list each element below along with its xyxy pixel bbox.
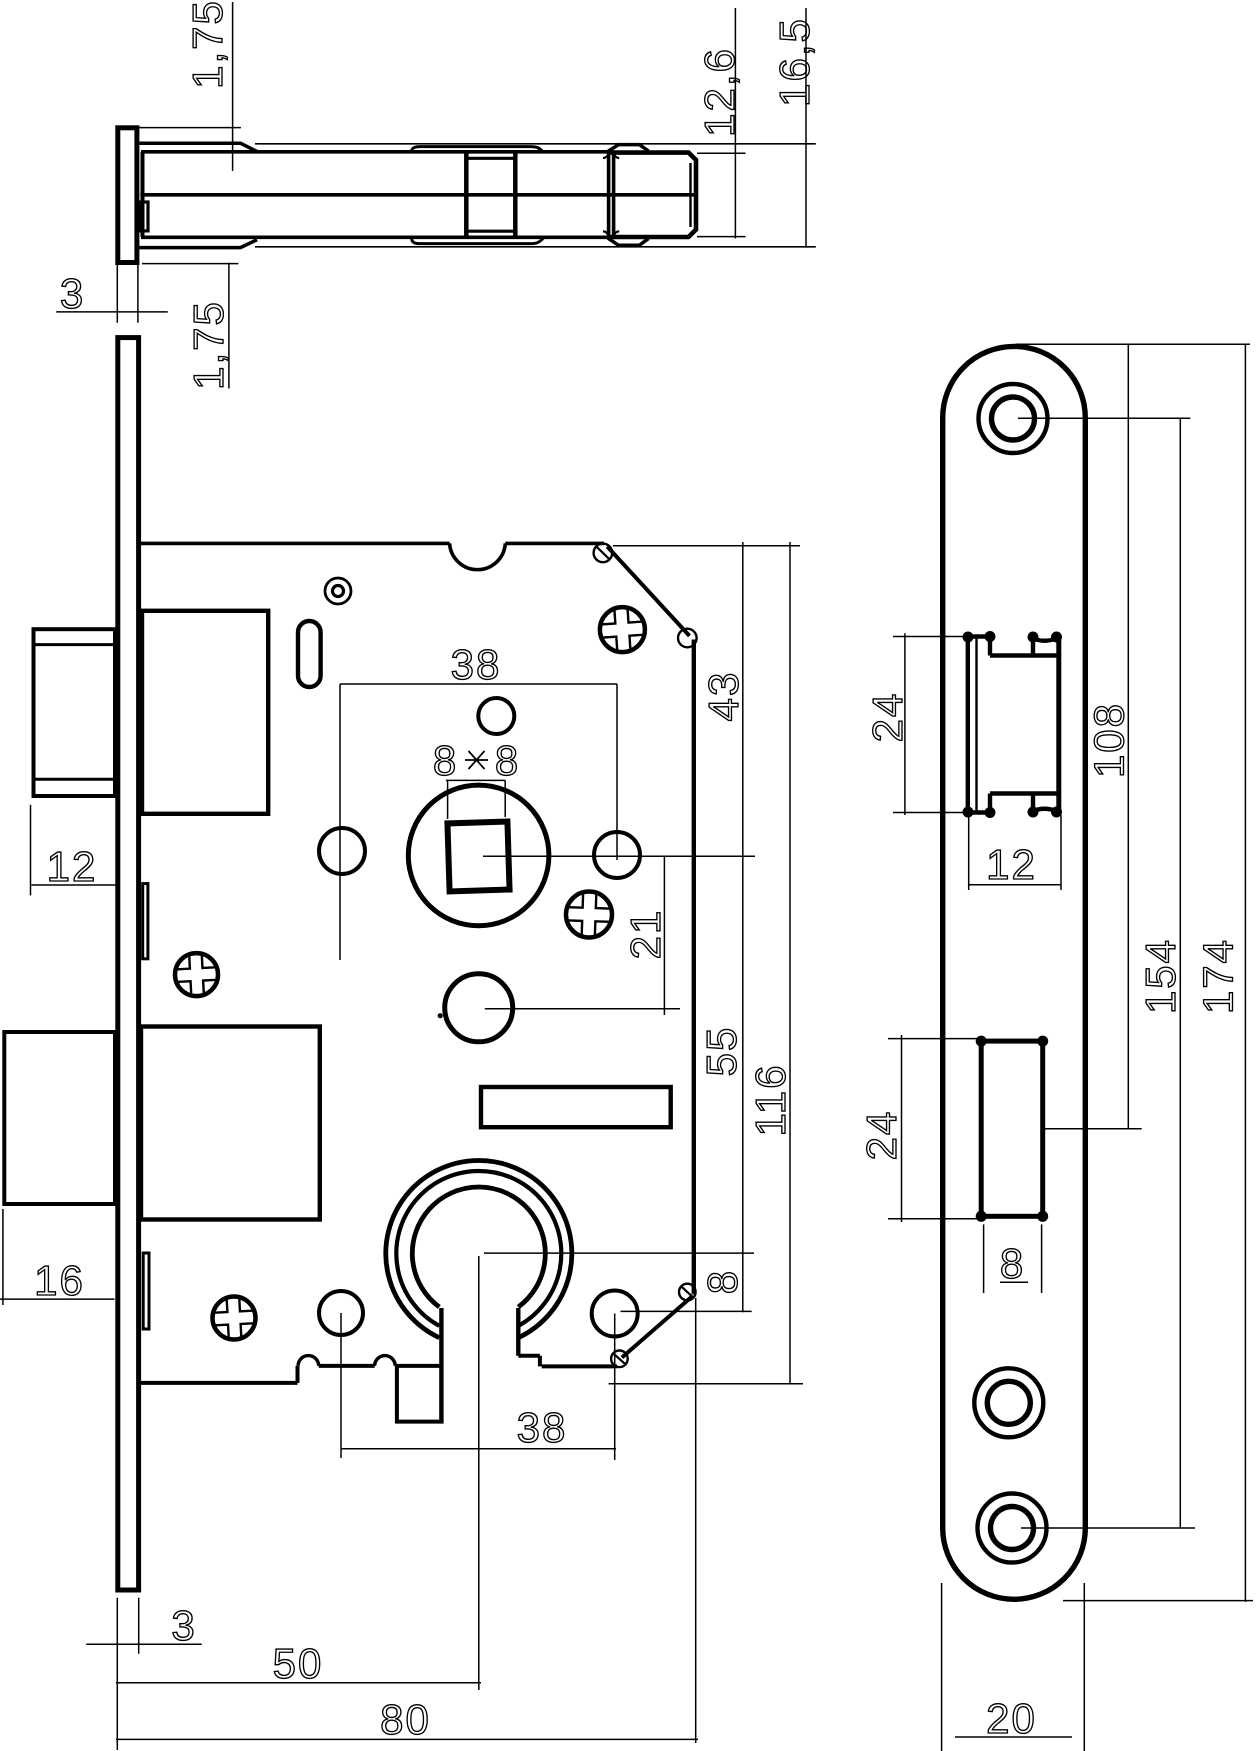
svg-text:12: 12 (986, 841, 1037, 888)
svg-text:24: 24 (864, 692, 911, 743)
svg-text:38: 38 (517, 1404, 568, 1451)
svg-text:1,75: 1,75 (185, 300, 232, 390)
svg-text:8: 8 (433, 737, 458, 784)
svg-text:116: 116 (747, 1064, 794, 1137)
svg-text:8: 8 (1000, 1240, 1025, 1287)
svg-text:3: 3 (171, 1602, 196, 1649)
svg-text:55: 55 (698, 1026, 745, 1077)
svg-text:1,75: 1,75 (184, 0, 231, 89)
svg-text:174: 174 (1195, 938, 1242, 1014)
svg-text:16: 16 (34, 1257, 85, 1304)
svg-text:12: 12 (47, 843, 98, 890)
svg-text:154: 154 (1137, 938, 1184, 1014)
svg-text:8: 8 (699, 1269, 746, 1294)
svg-text:16,5: 16,5 (771, 17, 818, 107)
svg-text:3: 3 (60, 270, 85, 317)
svg-text:43: 43 (700, 671, 747, 722)
svg-text:50: 50 (273, 1640, 324, 1687)
svg-text:24: 24 (858, 1110, 905, 1161)
svg-text:80: 80 (380, 1696, 431, 1743)
svg-text:12,6: 12,6 (696, 47, 743, 137)
svg-text:20: 20 (986, 1695, 1037, 1742)
svg-text:108: 108 (1086, 702, 1133, 778)
svg-text:38: 38 (451, 641, 502, 688)
svg-text:21: 21 (622, 909, 669, 960)
svg-text:8: 8 (495, 737, 520, 784)
